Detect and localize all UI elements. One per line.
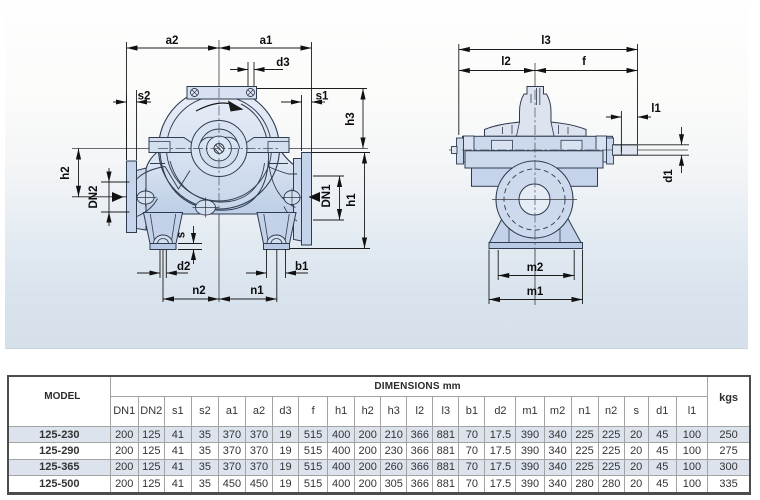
svg-text:d1: d1 <box>663 169 675 183</box>
svg-text:DN2: DN2 <box>88 185 100 208</box>
svg-text:h3: h3 <box>345 112 357 125</box>
svg-text:h2: h2 <box>60 166 72 179</box>
svg-text:a2: a2 <box>166 35 179 47</box>
svg-text:l3: l3 <box>541 35 551 47</box>
svg-text:s: s <box>176 232 188 238</box>
svg-text:h1: h1 <box>346 193 358 207</box>
svg-text:m1: m1 <box>527 286 544 298</box>
svg-text:l1: l1 <box>651 103 661 115</box>
svg-text:s1: s1 <box>316 91 329 103</box>
svg-text:DN1: DN1 <box>321 184 333 208</box>
svg-text:l2: l2 <box>501 56 511 68</box>
svg-text:f: f <box>582 56 586 68</box>
svg-text:n1: n1 <box>250 285 264 297</box>
svg-text:n2: n2 <box>192 285 205 297</box>
svg-text:d3: d3 <box>276 57 289 69</box>
svg-text:a1: a1 <box>260 35 273 47</box>
svg-text:d2: d2 <box>177 261 190 273</box>
svg-text:s2: s2 <box>138 91 151 103</box>
svg-text:b1: b1 <box>295 261 309 273</box>
svg-text:m2: m2 <box>527 262 544 274</box>
